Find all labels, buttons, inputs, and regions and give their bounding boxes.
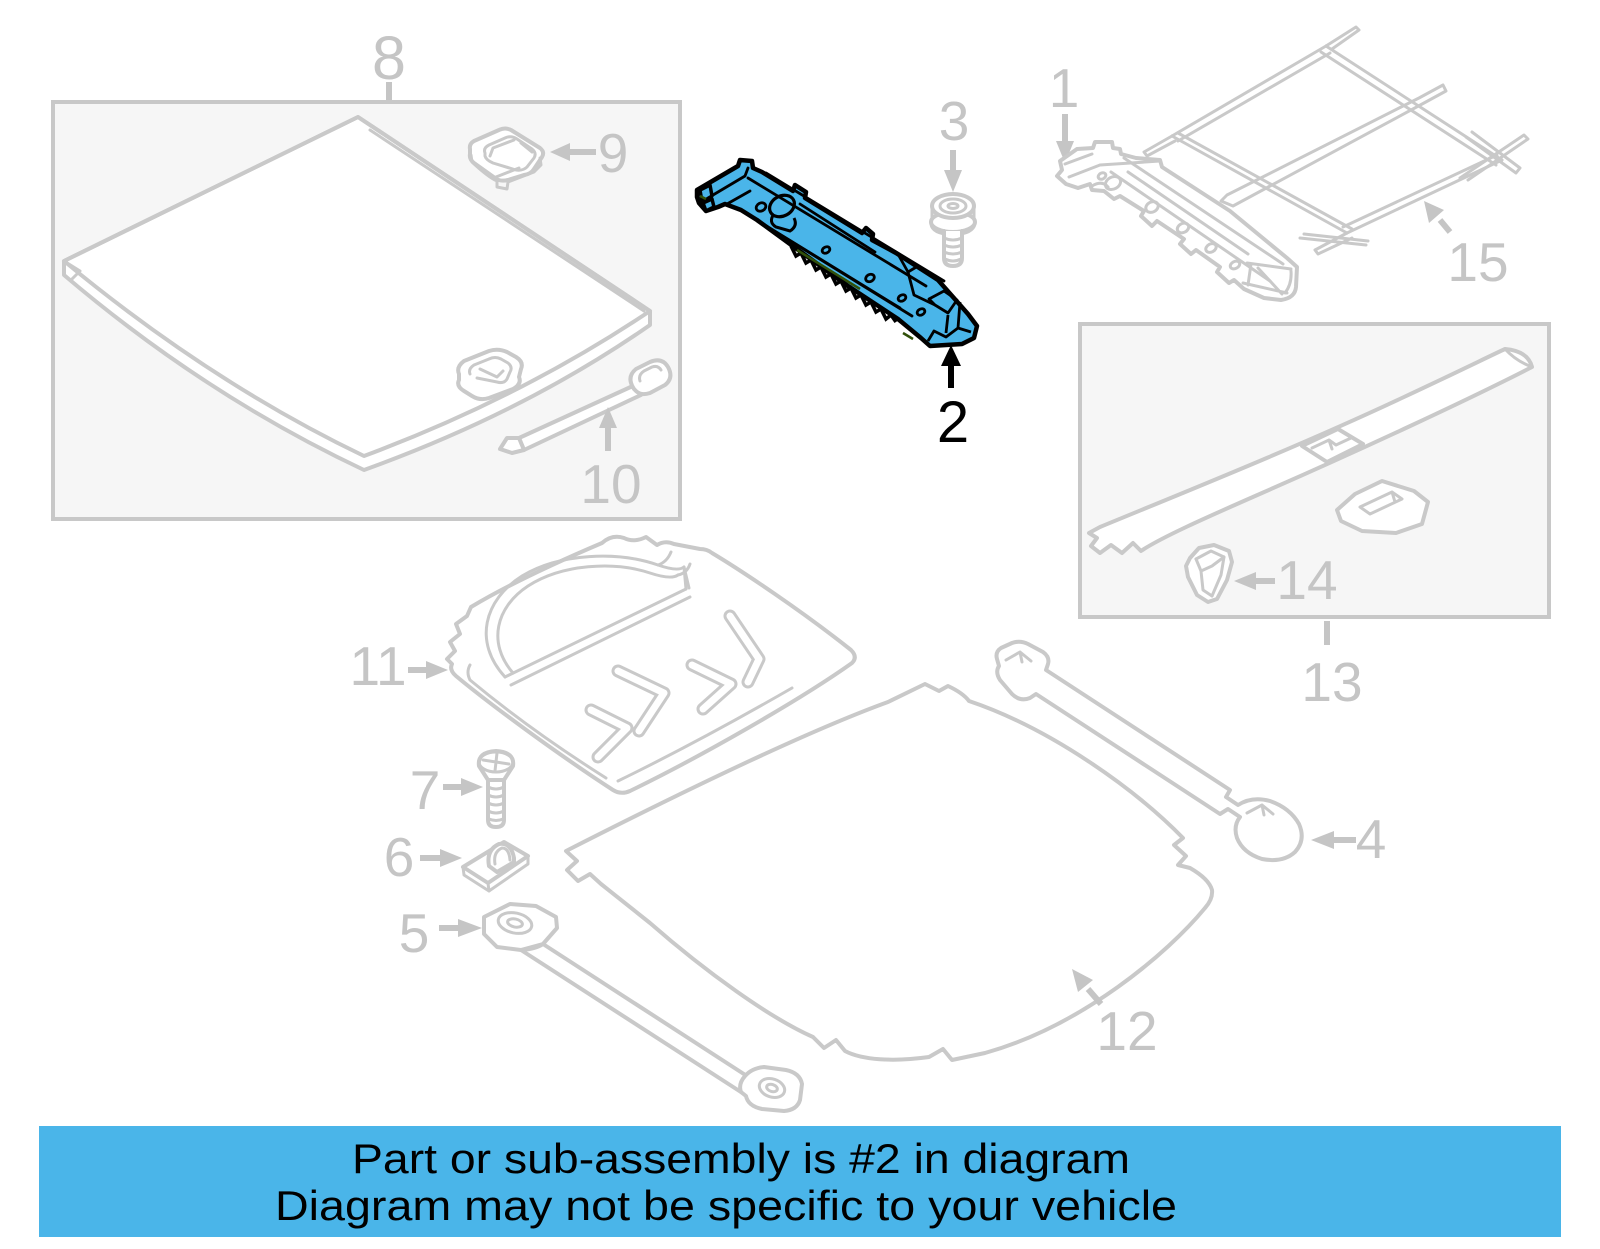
svg-text:4: 4: [1356, 808, 1387, 870]
svg-text:15: 15: [1447, 231, 1508, 293]
svg-text:1: 1: [1049, 57, 1080, 119]
svg-text:14: 14: [1276, 549, 1337, 611]
svg-text:12: 12: [1096, 1000, 1157, 1062]
svg-text:3: 3: [939, 90, 970, 152]
svg-text:9: 9: [598, 122, 629, 184]
svg-text:10: 10: [580, 453, 641, 515]
svg-text:Part or sub-assembly is #2 in: Part or sub-assembly is #2 in diagram: [352, 1135, 1130, 1182]
svg-text:6: 6: [384, 826, 415, 888]
svg-text:13: 13: [1301, 651, 1362, 713]
svg-text:2: 2: [937, 390, 969, 455]
svg-text:Diagram may not be specific to: Diagram may not be specific to your vehi…: [275, 1182, 1177, 1229]
svg-text:8: 8: [372, 24, 406, 92]
svg-text:5: 5: [399, 902, 430, 964]
svg-text:7: 7: [410, 759, 441, 821]
svg-text:11: 11: [349, 635, 406, 697]
